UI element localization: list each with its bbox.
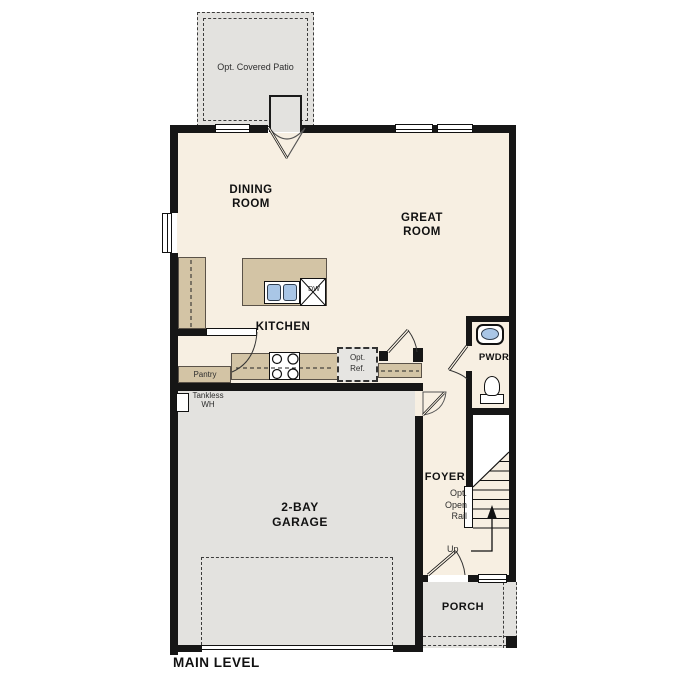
great-line1: GREAT [382, 211, 462, 225]
rail-line1: Opt. [423, 488, 467, 500]
room-label-great: GREAT ROOM [382, 211, 462, 239]
plan-title: MAIN LEVEL [173, 655, 260, 670]
rail-line2: Open [423, 500, 467, 512]
floor-plan: Opt. Covered Patio [0, 0, 687, 687]
door-pwdr [449, 346, 467, 379]
room-label-pwdr: PWDR [473, 352, 515, 363]
door-patio [269, 128, 305, 158]
dining-line1: DINING [211, 183, 291, 197]
plan-linework [0, 0, 687, 687]
room-label-kitchen: KITCHEN [243, 321, 323, 333]
garage-line1: 2-BAY [260, 500, 340, 515]
rail-line3: Rail [423, 511, 467, 523]
room-label-garage: 2-BAY GARAGE [260, 500, 340, 530]
counter-centerline [191, 260, 419, 371]
stove-burners [273, 354, 299, 379]
great-line2: ROOM [382, 225, 462, 239]
dining-line2: ROOM [211, 197, 291, 211]
room-label-foyer: FOYER [420, 471, 470, 483]
dishwasher-x-icon [301, 279, 325, 305]
room-label-dining: DINING ROOM [211, 183, 291, 211]
door-pantry-arc [232, 332, 257, 372]
garage-line2: GARAGE [260, 515, 340, 530]
room-label-porch: PORCH [440, 601, 486, 613]
up-label: Up [447, 544, 467, 554]
door-kitchen-east [388, 330, 417, 352]
opt-open-rail-label: Opt. Open Rail [423, 488, 467, 523]
door-garage-entry [423, 392, 446, 415]
door-front [428, 551, 465, 575]
